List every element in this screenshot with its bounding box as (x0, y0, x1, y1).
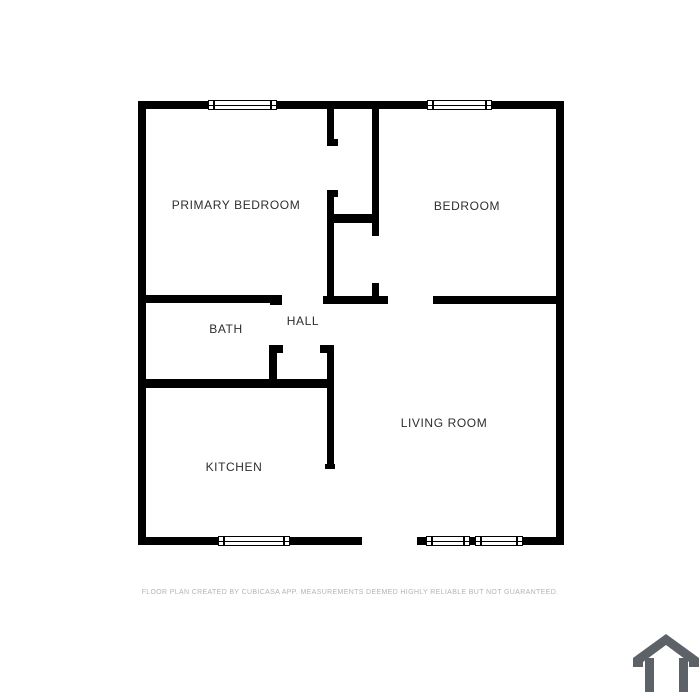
closet-door-jamb-cap (327, 190, 338, 197)
window-frame-tick (431, 537, 433, 545)
bath-top-wall (138, 295, 270, 303)
window (218, 536, 290, 546)
outer-wall-left (138, 101, 146, 545)
room-label-living-room: LIVING ROOM (401, 416, 488, 430)
kitchen-top-wall (138, 379, 334, 388)
closet-door-jamb-cap (327, 139, 338, 146)
divider-wall-cap-top (320, 345, 334, 353)
window-frame-tick (432, 101, 434, 109)
window-frame-tick (213, 101, 215, 109)
window-frame-tick (480, 537, 482, 545)
room-label-primary-bedroom: PRIMARY BEDROOM (172, 198, 301, 212)
cubicasa-house-logo-icon (633, 634, 699, 692)
disclaimer-text: FLOOR PLAN CREATED BY CUBICASA APP. MEAS… (0, 589, 700, 596)
window (475, 536, 523, 546)
bath-door-jamb-cap (269, 345, 283, 353)
window-frame-tick (223, 537, 225, 545)
window-frame-tick (283, 537, 285, 545)
living-room-top-wall (433, 296, 564, 304)
room-label-bedroom: BEDROOM (434, 199, 500, 213)
room-label-kitchen: KITCHEN (206, 460, 263, 474)
window (426, 536, 470, 546)
closet-wall-left-lower (327, 190, 334, 304)
entry-door-opening (362, 536, 417, 546)
outer-wall-right (556, 101, 564, 545)
window-frame-tick (463, 537, 465, 545)
window (427, 100, 492, 110)
room-label-bath: BATH (209, 322, 243, 336)
window-frame-tick (516, 537, 518, 545)
bath-top-wall-cap (270, 295, 282, 305)
hall-top-wall (323, 296, 388, 304)
kitchen-living-divider-wall (327, 345, 334, 469)
closet-divider-wall (327, 214, 379, 223)
window (208, 100, 277, 110)
room-label-hall: HALL (287, 314, 319, 328)
window-frame-tick (270, 101, 272, 109)
floor-plan-page: PRIMARY BEDROOM BEDROOM BATH HALL KITCHE… (0, 0, 700, 700)
window-frame-tick (485, 101, 487, 109)
outer-wall-top (138, 101, 564, 109)
divider-wall-cap-bottom (325, 464, 335, 469)
